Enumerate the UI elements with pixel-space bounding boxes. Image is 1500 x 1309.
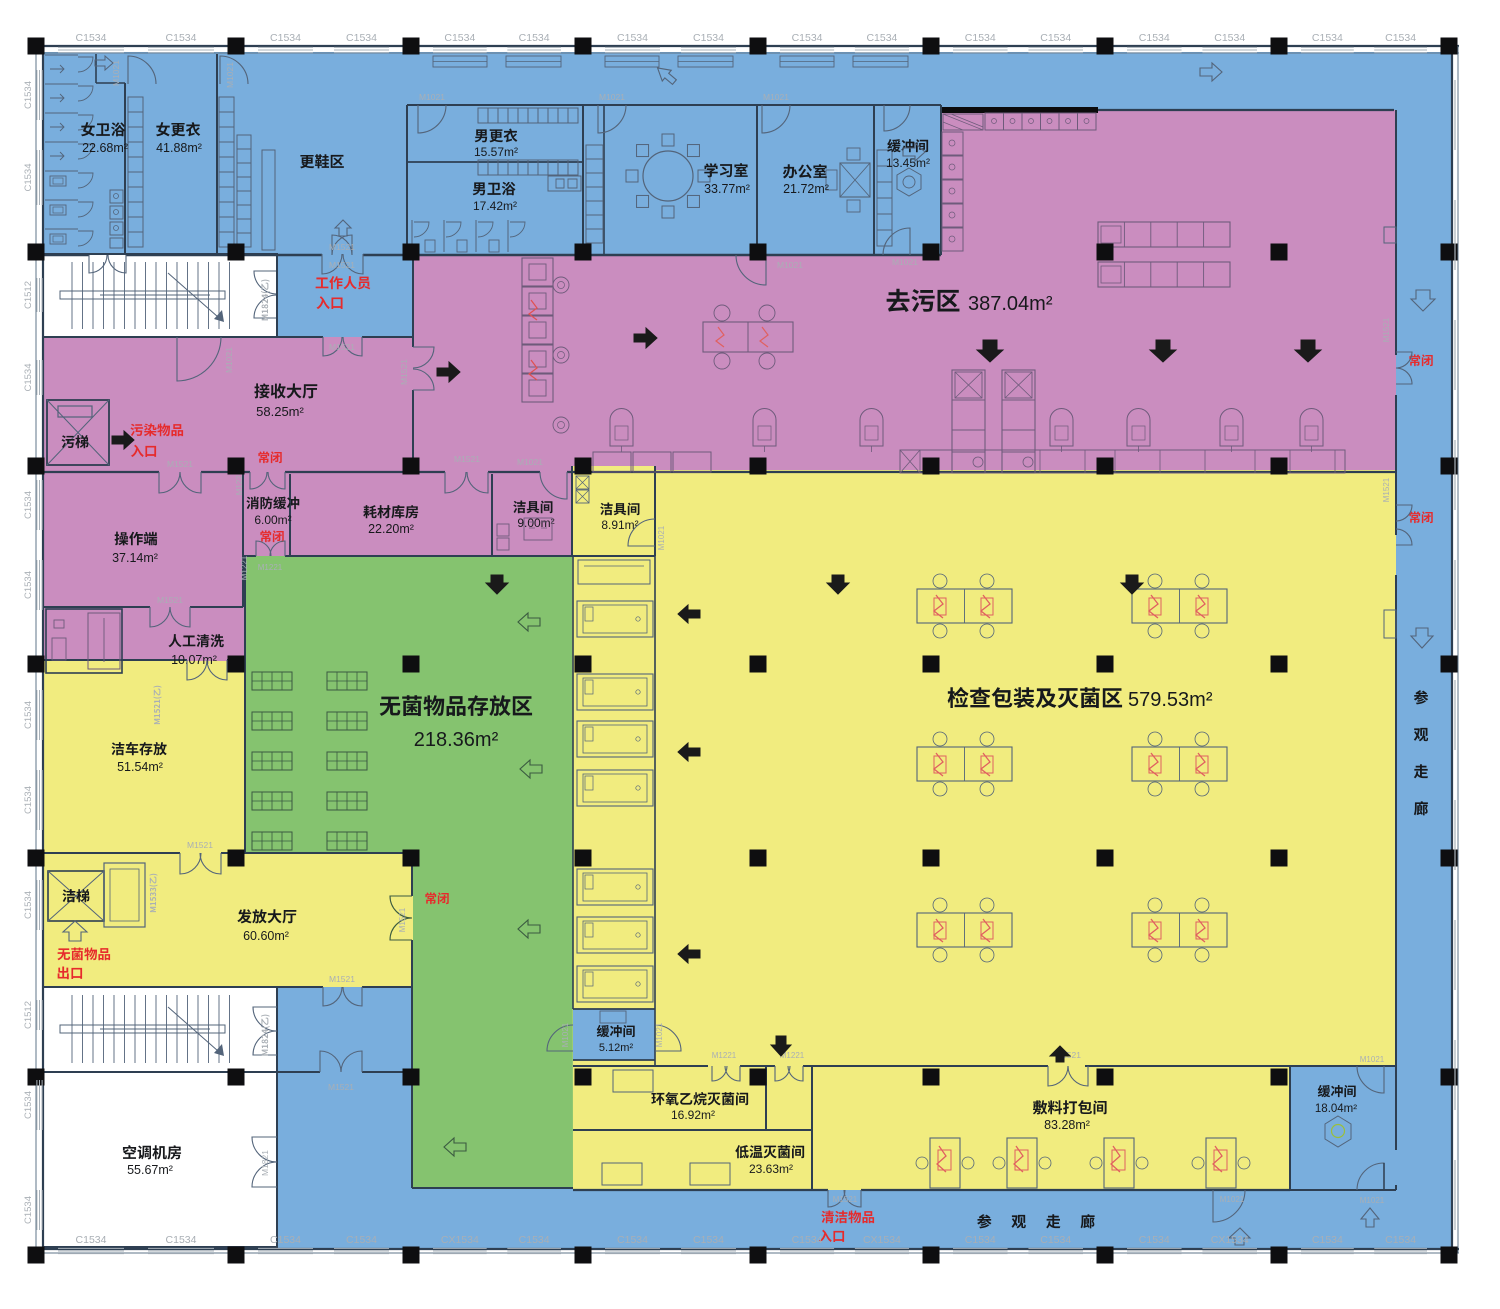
svg-text:C1512: C1512 [23, 1001, 34, 1029]
svg-text:58.25m²: 58.25m² [256, 404, 304, 419]
svg-text:17.42m²: 17.42m² [473, 199, 517, 213]
svg-text:37.14m²: 37.14m² [112, 551, 158, 565]
svg-text:C1534: C1534 [23, 701, 34, 729]
svg-text:M1021: M1021 [763, 92, 789, 102]
svg-text:C1534: C1534 [1139, 1234, 1170, 1246]
svg-text:387.04m²: 387.04m² [968, 293, 1053, 315]
svg-text:M1021: M1021 [777, 260, 803, 270]
svg-text:M1021: M1021 [561, 1022, 570, 1047]
svg-text:23.63m²: 23.63m² [749, 1162, 793, 1176]
svg-text:C1534: C1534 [519, 1234, 550, 1246]
svg-text:C1534: C1534 [1040, 1234, 1071, 1246]
svg-text:C1534: C1534 [1385, 1234, 1416, 1246]
svg-text:M1021: M1021 [225, 62, 235, 88]
svg-text:C1534: C1534 [270, 32, 301, 44]
svg-text:M1021: M1021 [224, 347, 234, 373]
svg-text:M1021: M1021 [599, 92, 625, 102]
svg-text:55.67m²: 55.67m² [127, 1163, 173, 1177]
svg-text:M1221: M1221 [258, 563, 283, 572]
svg-text:M1521: M1521 [1382, 317, 1391, 342]
svg-text:M1021: M1021 [419, 92, 445, 102]
svg-text:C1534: C1534 [166, 1234, 197, 1246]
svg-text:M1521: M1521 [399, 359, 409, 385]
svg-text:C1534: C1534 [965, 32, 996, 44]
svg-text:M1021: M1021 [655, 1022, 664, 1047]
svg-text:C1534: C1534 [23, 571, 34, 599]
svg-text:C1534: C1534 [23, 891, 34, 919]
svg-text:M1021: M1021 [892, 257, 918, 267]
svg-text:C1512: C1512 [23, 281, 34, 309]
svg-text:C1534: C1534 [1312, 32, 1343, 44]
svg-text:C1534: C1534 [444, 32, 475, 44]
svg-text:M1021: M1021 [1360, 1055, 1385, 1064]
svg-text:M1021: M1021 [657, 525, 666, 550]
svg-text:33.77m²: 33.77m² [704, 182, 750, 196]
svg-text:M1021: M1021 [517, 457, 543, 467]
svg-text:C1534: C1534 [23, 364, 34, 392]
svg-text:51.54m²: 51.54m² [117, 760, 163, 774]
svg-text:M1521: M1521 [398, 907, 407, 932]
svg-text:C1534: C1534 [346, 32, 377, 44]
svg-text:41.88m²: 41.88m² [156, 141, 202, 155]
svg-text:M1021: M1021 [1220, 1195, 1245, 1204]
svg-text:M1021: M1021 [1360, 1196, 1385, 1205]
svg-text:C1534: C1534 [617, 32, 648, 44]
svg-text:M1521: M1521 [329, 242, 355, 252]
svg-text:C1534: C1534 [866, 32, 897, 44]
svg-text:C1534: C1534 [23, 786, 34, 814]
svg-text:22.68m²: 22.68m² [82, 141, 128, 155]
svg-text:M1521: M1521 [329, 342, 355, 352]
svg-text:M1521: M1521 [1382, 477, 1391, 502]
svg-text:218.36m²: 218.36m² [414, 729, 499, 751]
svg-text:C1534: C1534 [1040, 32, 1071, 44]
svg-text:M1521: M1521 [157, 595, 183, 605]
svg-text:6.00m²: 6.00m² [254, 513, 291, 527]
svg-text:C1534: C1534 [346, 1234, 377, 1246]
svg-text:C1534: C1534 [693, 1234, 724, 1246]
svg-text:18.04m²: 18.04m² [1315, 1103, 1357, 1115]
svg-text:C1534: C1534 [76, 1234, 107, 1246]
svg-text:C1534: C1534 [792, 1234, 823, 1246]
svg-text:C1534: C1534 [76, 32, 107, 44]
svg-text:M1221: M1221 [712, 1051, 737, 1060]
svg-text:C1534: C1534 [617, 1234, 648, 1246]
svg-text:22.20m²: 22.20m² [368, 522, 414, 536]
svg-text:21.72m²: 21.72m² [783, 182, 829, 196]
svg-text:C1534: C1534 [23, 164, 34, 192]
svg-text:C1534: C1534 [23, 81, 34, 109]
svg-text:C1534: C1534 [965, 1234, 996, 1246]
svg-text:M1521: M1521 [454, 454, 480, 464]
svg-text:CX1534: CX1534 [1211, 1234, 1249, 1246]
svg-text:5.12m²: 5.12m² [599, 1042, 634, 1054]
svg-text:C1534: C1534 [1385, 32, 1416, 44]
svg-text:C1534: C1534 [1139, 32, 1170, 44]
svg-text:C1534: C1534 [1214, 32, 1245, 44]
svg-text:C1534: C1534 [519, 32, 550, 44]
svg-text:M1221: M1221 [240, 555, 249, 580]
svg-text:10.07m²: 10.07m² [171, 653, 217, 667]
svg-text:15.57m²: 15.57m² [474, 145, 518, 159]
svg-text:C1534: C1534 [23, 1196, 34, 1224]
svg-text:C1534: C1534 [1312, 1234, 1343, 1246]
svg-text:579.53m²: 579.53m² [1128, 689, 1213, 711]
svg-text:C1534: C1534 [693, 32, 724, 44]
svg-text:M1521: M1521 [187, 840, 213, 850]
svg-text:M1521: M1521 [328, 1082, 354, 1092]
svg-text:C1534: C1534 [166, 32, 197, 44]
svg-text:16.92m²: 16.92m² [671, 1108, 715, 1122]
svg-text:60.60m²: 60.60m² [243, 929, 289, 943]
svg-text:83.28m²: 83.28m² [1044, 1118, 1090, 1132]
svg-text:M1521: M1521 [167, 459, 193, 469]
svg-text:M1521: M1521 [329, 260, 355, 270]
svg-text:C1534: C1534 [792, 32, 823, 44]
svg-text:C1534: C1534 [23, 1091, 34, 1119]
svg-text:CX1534: CX1534 [441, 1234, 479, 1246]
svg-text:C1534: C1534 [270, 1234, 301, 1246]
svg-text:M1521: M1521 [329, 974, 355, 984]
svg-text:M1521: M1521 [833, 1195, 858, 1204]
svg-text:C1534: C1534 [23, 491, 34, 519]
svg-text:CX1534: CX1534 [863, 1234, 901, 1246]
svg-text:M1821: M1821 [260, 1150, 270, 1176]
svg-text:13.45m²: 13.45m² [886, 156, 930, 170]
